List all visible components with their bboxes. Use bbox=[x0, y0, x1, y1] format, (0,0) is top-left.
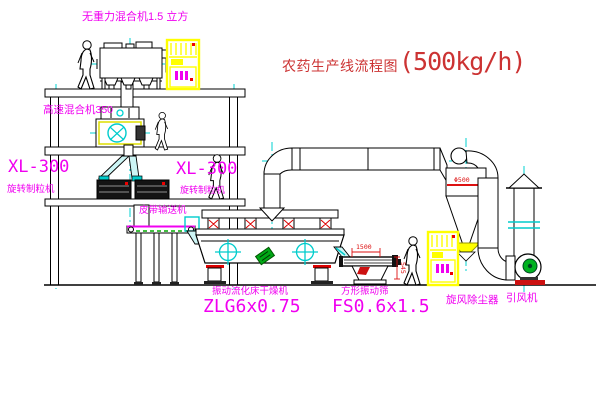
label-fan: 引风机 bbox=[506, 293, 538, 304]
downcomer-pipe bbox=[478, 178, 508, 280]
title-capacity: (500kg/h) bbox=[399, 47, 525, 76]
person-figure bbox=[155, 112, 167, 150]
floor-slab-top bbox=[45, 89, 245, 97]
granulator-left bbox=[97, 176, 131, 199]
fluid-bed-dryer bbox=[196, 210, 344, 284]
exhaust-stack bbox=[506, 174, 542, 262]
granulator-right bbox=[132, 176, 169, 199]
control-cabinet-bottom bbox=[428, 232, 458, 285]
induced-draft-fan bbox=[506, 254, 545, 285]
label-cyclone: 旋风除尘器 bbox=[446, 295, 499, 306]
diagram-title: 农药生产线流程图 (500kg/h) bbox=[282, 47, 525, 76]
person-figure bbox=[404, 237, 420, 285]
person-figure bbox=[78, 41, 94, 89]
flow-diagram: 1500 545 Φ500 bbox=[0, 0, 600, 403]
label-belt-conveyor: 皮带输送机 bbox=[139, 206, 187, 216]
label-granulator-right: 旋转制粒机 bbox=[180, 186, 225, 195]
dryer-supports bbox=[204, 265, 333, 284]
indicator-dot bbox=[450, 272, 453, 275]
belt-conveyor bbox=[127, 217, 207, 285]
spring-hangers bbox=[208, 218, 331, 230]
y-chute bbox=[99, 156, 139, 178]
indicator-dot bbox=[452, 235, 455, 238]
label-sieve-model: FS0.6x1.5 bbox=[332, 298, 430, 316]
floor-slab-middle bbox=[45, 147, 245, 155]
indicator-dot bbox=[190, 78, 193, 81]
indicator-dot bbox=[192, 43, 195, 46]
dim-label-cyclone: Φ500 bbox=[454, 176, 470, 184]
dim-label-1500: 1500 bbox=[356, 243, 372, 251]
label-xl300-right: XL-300 bbox=[176, 161, 237, 178]
label-granulator-left: 旋转制粒机 bbox=[7, 185, 55, 195]
title-text: 农药生产线流程图 bbox=[282, 47, 398, 76]
label-high-speed-mixer: 高速混合机350 bbox=[43, 105, 113, 116]
label-dryer-model: ZLG6x0.75 bbox=[203, 298, 301, 316]
label-xl300-left: XL-300 bbox=[8, 159, 69, 176]
gravity-free-mixer bbox=[97, 42, 177, 110]
fan-base bbox=[515, 280, 545, 285]
label-gravity-mixer: 无重力混合机1.5 立方 bbox=[82, 12, 188, 23]
vibrating-sieve bbox=[334, 247, 401, 284]
control-cabinet-top bbox=[167, 40, 199, 89]
